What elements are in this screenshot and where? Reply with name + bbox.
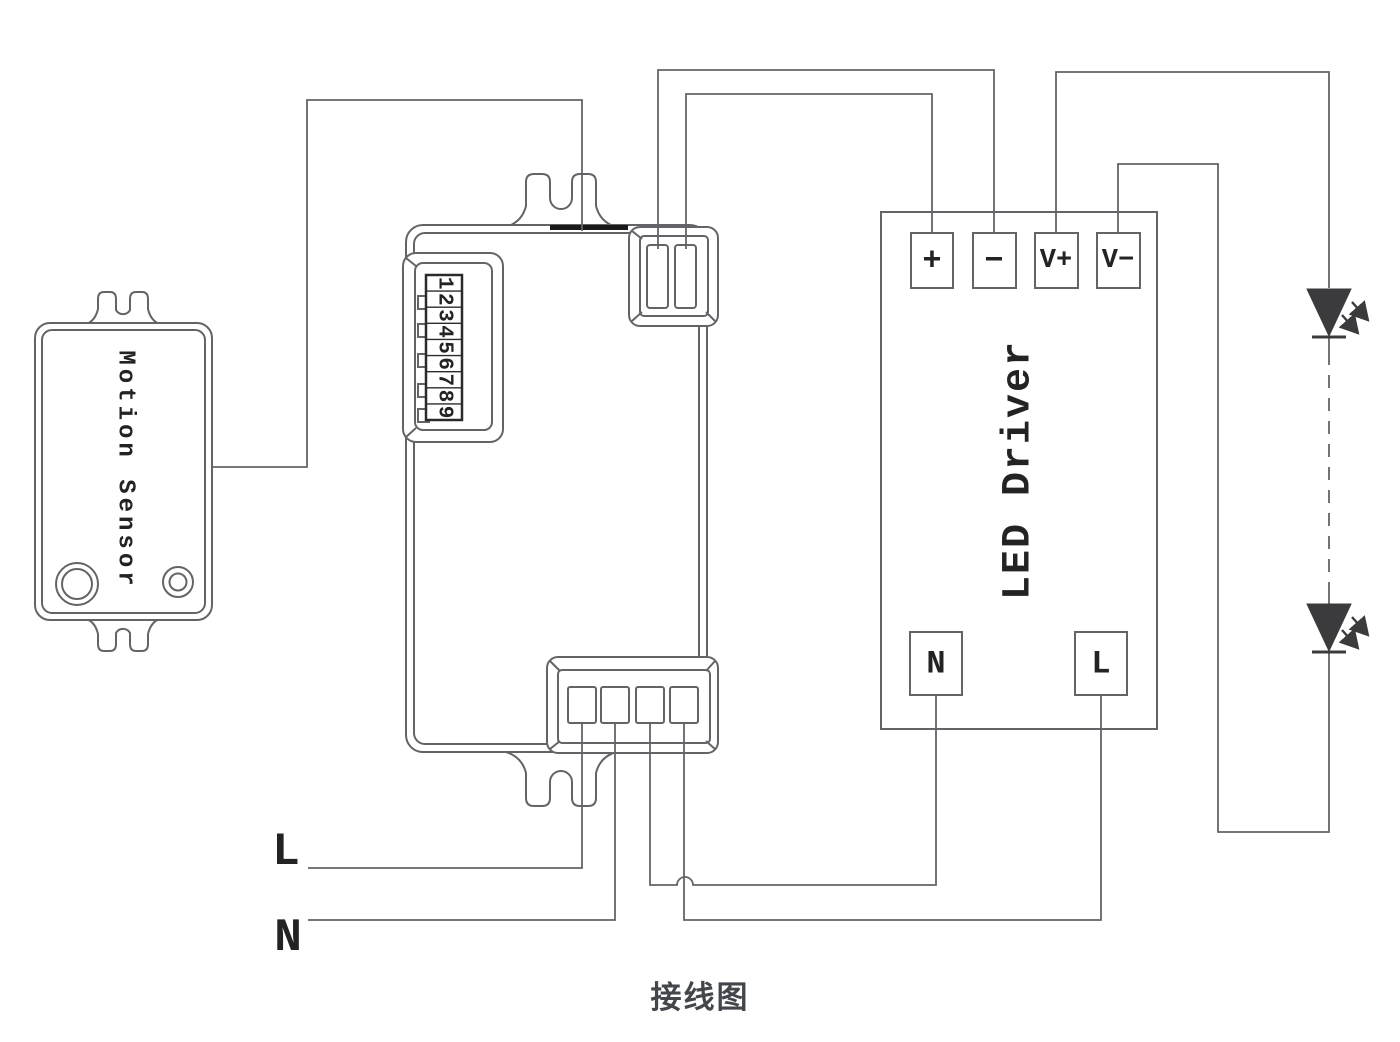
wires (212, 70, 1329, 920)
wire-entry-bar (550, 225, 628, 230)
top-block-outer (629, 227, 718, 326)
terminal-plus-label: + (922, 243, 941, 280)
controller-bottom-mount-tab (506, 752, 616, 806)
dip-digit: 2 (433, 293, 456, 306)
wiring-diagram-canvas: Motion Sensor (0, 0, 1400, 1042)
diagram-title: 接线图 (651, 980, 750, 1016)
dip-digit: 4 (433, 325, 456, 338)
controller-top-mount-tab (506, 174, 616, 227)
terminal-live-label: L (1091, 646, 1110, 683)
dip-digit: 8 (433, 390, 456, 403)
led-driver: LED Driver + − V+ V− N L (881, 212, 1157, 729)
terminal-minus-label: − (984, 243, 1003, 280)
led-string (1307, 289, 1367, 652)
mains-live-label: L (272, 826, 300, 878)
dip-digit: 5 (433, 341, 456, 354)
terminal-vminus-label: V− (1102, 246, 1134, 276)
bottom-terminal-slot-4 (670, 687, 698, 723)
bottom-terminal-slot-3 (636, 687, 664, 723)
terminal-neutral-label: N (926, 646, 945, 683)
led-2-icon (1307, 604, 1367, 652)
sensor-controller: 1 2 3 4 5 6 7 8 9 (403, 174, 718, 806)
led-1-icon (1307, 289, 1367, 337)
motion-sensor-label: Motion Sensor (112, 350, 139, 589)
motion-sensor: Motion Sensor (35, 292, 212, 651)
controller-top-terminal-block (629, 227, 718, 326)
top-terminal-slot-1 (647, 245, 668, 308)
dip-digit: 9 (433, 406, 456, 419)
mains-neutral-label: N (274, 912, 302, 964)
sensor-top-mount-tab (84, 292, 162, 325)
wiring-diagram: Motion Sensor (0, 0, 1400, 1042)
dip-digit: 6 (433, 357, 456, 370)
controller-bottom-terminal-block (547, 657, 718, 753)
dip-digit: 1 (433, 277, 456, 290)
dip-digits: 1 2 3 4 5 6 7 8 9 (433, 277, 456, 418)
dip-digit: 3 (433, 309, 456, 322)
dip-digit: 7 (433, 373, 456, 386)
terminal-vplus-label: V+ (1040, 246, 1072, 276)
led-driver-label: LED Driver (997, 340, 1042, 600)
top-terminal-slot-2 (675, 245, 696, 308)
sensor-bottom-mount-tab (84, 618, 162, 651)
dip-switch-panel: 1 2 3 4 5 6 7 8 9 (403, 253, 503, 442)
bottom-terminal-slot-2 (601, 687, 629, 723)
bottom-terminal-slot-1 (568, 687, 596, 723)
